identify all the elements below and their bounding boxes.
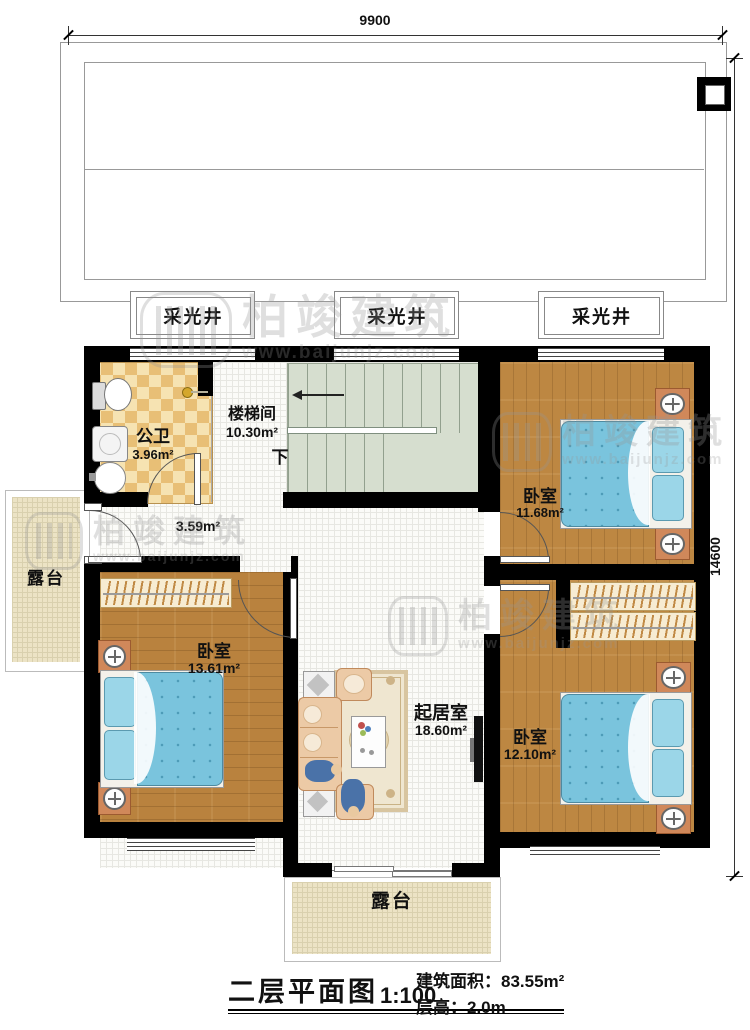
roof-inner-outline xyxy=(84,62,706,280)
pillow xyxy=(652,475,684,521)
roof-ridge-line xyxy=(84,169,704,170)
wall-bedroom-w-south xyxy=(84,822,295,838)
teacup xyxy=(369,750,374,755)
lightwell-2: 采光井 xyxy=(334,291,459,339)
sliding-door-panel-2 xyxy=(392,871,452,877)
sink-tap xyxy=(89,473,96,481)
bedroom-ne-name: 卧室 xyxy=(508,488,572,506)
teacup xyxy=(360,748,365,753)
sofa-seam xyxy=(300,727,338,728)
nightstand-lamp xyxy=(656,803,691,834)
nightstand-lamp xyxy=(98,640,131,673)
terrace-left-label: 露台 xyxy=(13,570,79,588)
floor-height-value: 2.0m xyxy=(467,998,506,1017)
bedroom-se-area: 12.10m² xyxy=(494,747,566,762)
lightwell-3: 采光井 xyxy=(538,291,664,339)
flower-blue xyxy=(365,726,371,732)
valve-line xyxy=(191,391,208,393)
floor-height-line: 层高：2.0m xyxy=(416,999,666,1017)
floor-plan: 9900 14600 采光井 采光井 采光井 xyxy=(0,0,750,1030)
pillow xyxy=(652,427,684,473)
pillow xyxy=(652,749,684,797)
dim-top-line xyxy=(68,35,722,36)
bathroom-partition-line xyxy=(211,396,212,502)
door-leaf-bedroom-ne xyxy=(500,556,550,563)
living-name: 起居室 xyxy=(402,704,480,723)
lightwell-1: 采光井 xyxy=(130,291,255,339)
flower-green xyxy=(360,730,366,736)
sink-basin xyxy=(94,462,126,494)
window-bedroom-w-south xyxy=(127,838,255,851)
stair-landing xyxy=(392,433,477,494)
sofa-seam xyxy=(300,757,338,758)
build-area-value: 83.55m² xyxy=(501,972,564,991)
living-area: 18.60m² xyxy=(404,723,478,738)
stairwell-name: 楼梯间 xyxy=(214,407,290,424)
dim-width-label: 9900 xyxy=(343,13,407,28)
wardrobe-bedroom-se-1 xyxy=(570,582,696,611)
chimney-window xyxy=(705,85,725,105)
dim-height-label: 14600 xyxy=(708,512,728,602)
bedroom-ne-area: 11.68m² xyxy=(504,506,576,520)
lightwell-1-label: 采光井 xyxy=(136,297,251,335)
wall-bedroom-w-north-stub xyxy=(291,556,298,572)
window-north-2 xyxy=(334,348,459,360)
bedroom-w-name: 卧室 xyxy=(182,643,246,661)
coffee-table xyxy=(351,716,386,768)
nightstand-lamp xyxy=(655,528,690,560)
flower-red xyxy=(358,722,365,729)
person-head xyxy=(331,764,342,775)
wardrobe-bedroom-w xyxy=(100,578,232,608)
wall-living-south-left xyxy=(283,863,332,877)
wall-wardrobe-stub xyxy=(556,580,570,648)
build-area-label: 建筑面积： xyxy=(416,972,501,991)
window-north-1 xyxy=(130,348,255,360)
hall-area: 3.59m² xyxy=(166,519,230,534)
stairwell-area: 10.30m² xyxy=(214,425,290,440)
armchair-top-cushion xyxy=(343,674,365,694)
bathroom-area: 3.96m² xyxy=(118,448,188,462)
door-leaf-bedroom-se xyxy=(500,584,550,591)
wall-stair-south xyxy=(283,492,480,508)
door-leaf-bedroom-w xyxy=(290,578,297,639)
build-area-line: 建筑面积：83.55m² xyxy=(416,973,666,991)
door-leaf-bathroom xyxy=(194,453,201,505)
toilet-bowl xyxy=(104,378,132,411)
nightstand-lamp xyxy=(656,662,691,693)
stair-direction-line xyxy=(300,394,344,396)
floor-height-label: 层高： xyxy=(416,998,467,1017)
lightwell-2-label: 采光井 xyxy=(340,297,455,335)
window-north-3 xyxy=(538,348,664,360)
plan-title: 二层平面图 xyxy=(228,978,378,1006)
pillow xyxy=(104,730,136,780)
terrace-bottom-label: 露台 xyxy=(352,892,432,912)
door-leaf-terrace-left xyxy=(88,556,142,563)
rug-corner-motif xyxy=(386,676,395,685)
sliding-door-panel-1 xyxy=(334,866,394,872)
person-head xyxy=(348,806,359,817)
wall-stair-east xyxy=(478,346,500,512)
pillow xyxy=(652,699,684,747)
bedroom-se-name: 卧室 xyxy=(498,729,562,747)
wardrobe-bedroom-se-2 xyxy=(570,612,696,641)
stair-arrow xyxy=(292,390,302,400)
nightstand-lamp xyxy=(655,388,690,420)
wall-east xyxy=(694,346,710,848)
lightwell-3-label: 采光井 xyxy=(544,297,660,335)
wall-bedrooms-divider xyxy=(500,564,710,580)
wall-doors-stub xyxy=(484,556,500,586)
stair-railing xyxy=(287,427,437,434)
tv-stand xyxy=(470,738,474,762)
window-bedroom-se-south xyxy=(530,846,660,858)
dim-right-line xyxy=(734,58,735,876)
bathroom-name: 公卫 xyxy=(118,428,188,446)
rug-corner-motif xyxy=(386,789,395,798)
stair-down-label: 下 xyxy=(268,449,292,467)
pillow xyxy=(104,677,136,727)
bedroom-w-area: 13.61m² xyxy=(178,661,250,676)
